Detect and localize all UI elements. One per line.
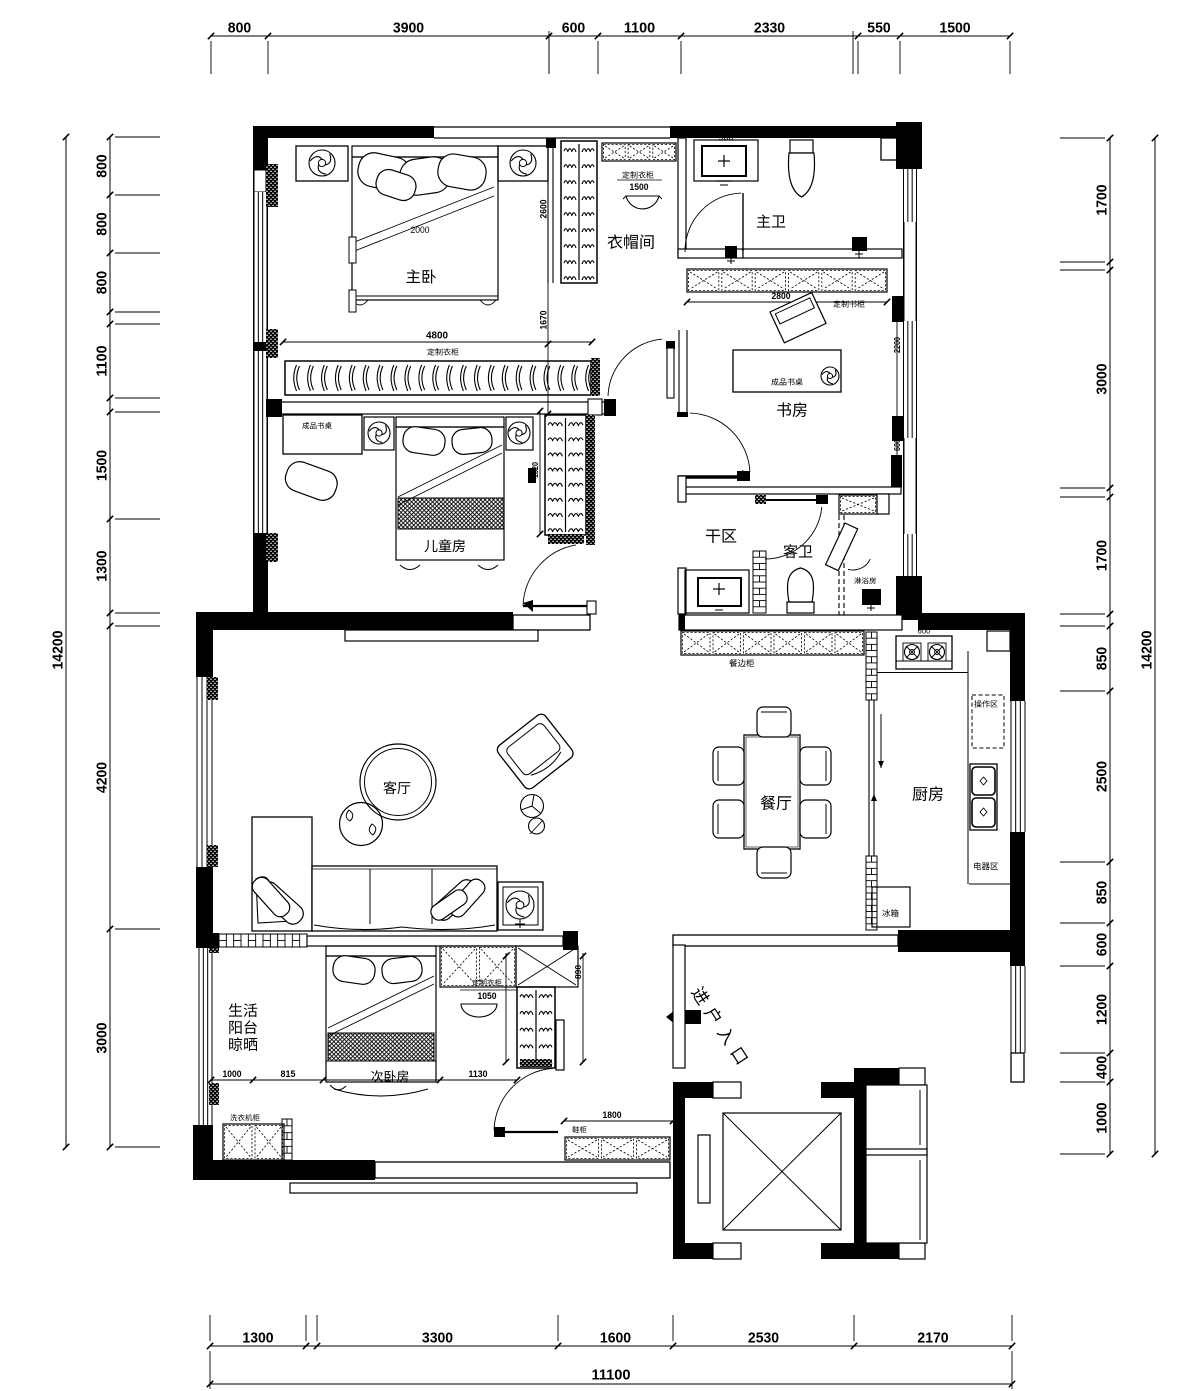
svg-text:800: 800 xyxy=(93,271,110,294)
svg-text:4200: 4200 xyxy=(93,762,110,793)
svg-text:2170: 2170 xyxy=(917,1329,948,1346)
svg-text:3000: 3000 xyxy=(1093,363,1110,394)
svg-text:1700: 1700 xyxy=(1093,184,1110,215)
svg-text:1700: 1700 xyxy=(1093,540,1110,571)
svg-text:2000: 2000 xyxy=(411,225,430,235)
svg-text:815: 815 xyxy=(281,1069,296,1079)
svg-text:800: 800 xyxy=(93,212,110,235)
svg-text:1300: 1300 xyxy=(93,550,110,581)
svg-text:14200: 14200 xyxy=(1138,631,1155,670)
svg-text:900: 900 xyxy=(719,133,735,142)
svg-text:11100: 11100 xyxy=(592,1366,631,1383)
svg-text:1670: 1670 xyxy=(538,311,548,330)
svg-text:1130: 1130 xyxy=(469,1069,488,1079)
svg-text:1000: 1000 xyxy=(223,1069,242,1079)
svg-text:2500: 2500 xyxy=(1093,761,1110,792)
svg-text:1050: 1050 xyxy=(478,991,497,1001)
svg-text:3000: 3000 xyxy=(93,1022,110,1053)
svg-text:2200: 2200 xyxy=(893,337,902,353)
svg-text:2330: 2330 xyxy=(754,19,785,36)
svg-text:600: 600 xyxy=(1093,933,1110,956)
svg-text:800: 800 xyxy=(228,19,251,36)
svg-text:800: 800 xyxy=(93,154,110,177)
svg-text:850: 850 xyxy=(1093,647,1110,670)
svg-text:1000: 1000 xyxy=(1093,1102,1110,1133)
svg-text:1100: 1100 xyxy=(93,345,110,376)
svg-text:1500: 1500 xyxy=(939,19,970,36)
svg-text:550: 550 xyxy=(867,19,890,36)
svg-text:890: 890 xyxy=(574,964,583,979)
svg-text:2530: 2530 xyxy=(748,1329,779,1346)
svg-text:1600: 1600 xyxy=(600,1329,631,1346)
svg-text:1500: 1500 xyxy=(630,182,649,192)
svg-text:1500: 1500 xyxy=(93,450,110,481)
svg-text:1200: 1200 xyxy=(1093,994,1110,1025)
svg-text:3900: 3900 xyxy=(393,19,424,36)
svg-text:4800: 4800 xyxy=(426,331,448,342)
svg-text:600: 600 xyxy=(918,627,931,636)
svg-text:600: 600 xyxy=(893,439,902,451)
svg-text:1800: 1800 xyxy=(603,1110,622,1120)
svg-text:1300: 1300 xyxy=(242,1329,273,1346)
svg-text:850: 850 xyxy=(1093,881,1110,904)
svg-text:2600: 2600 xyxy=(538,200,548,219)
svg-text:600: 600 xyxy=(562,19,585,36)
svg-text:1100: 1100 xyxy=(624,19,655,36)
svg-text:14200: 14200 xyxy=(49,631,66,670)
svg-text:3300: 3300 xyxy=(422,1329,453,1346)
svg-text:2800: 2800 xyxy=(772,291,791,301)
svg-text:400: 400 xyxy=(1093,1056,1110,1079)
